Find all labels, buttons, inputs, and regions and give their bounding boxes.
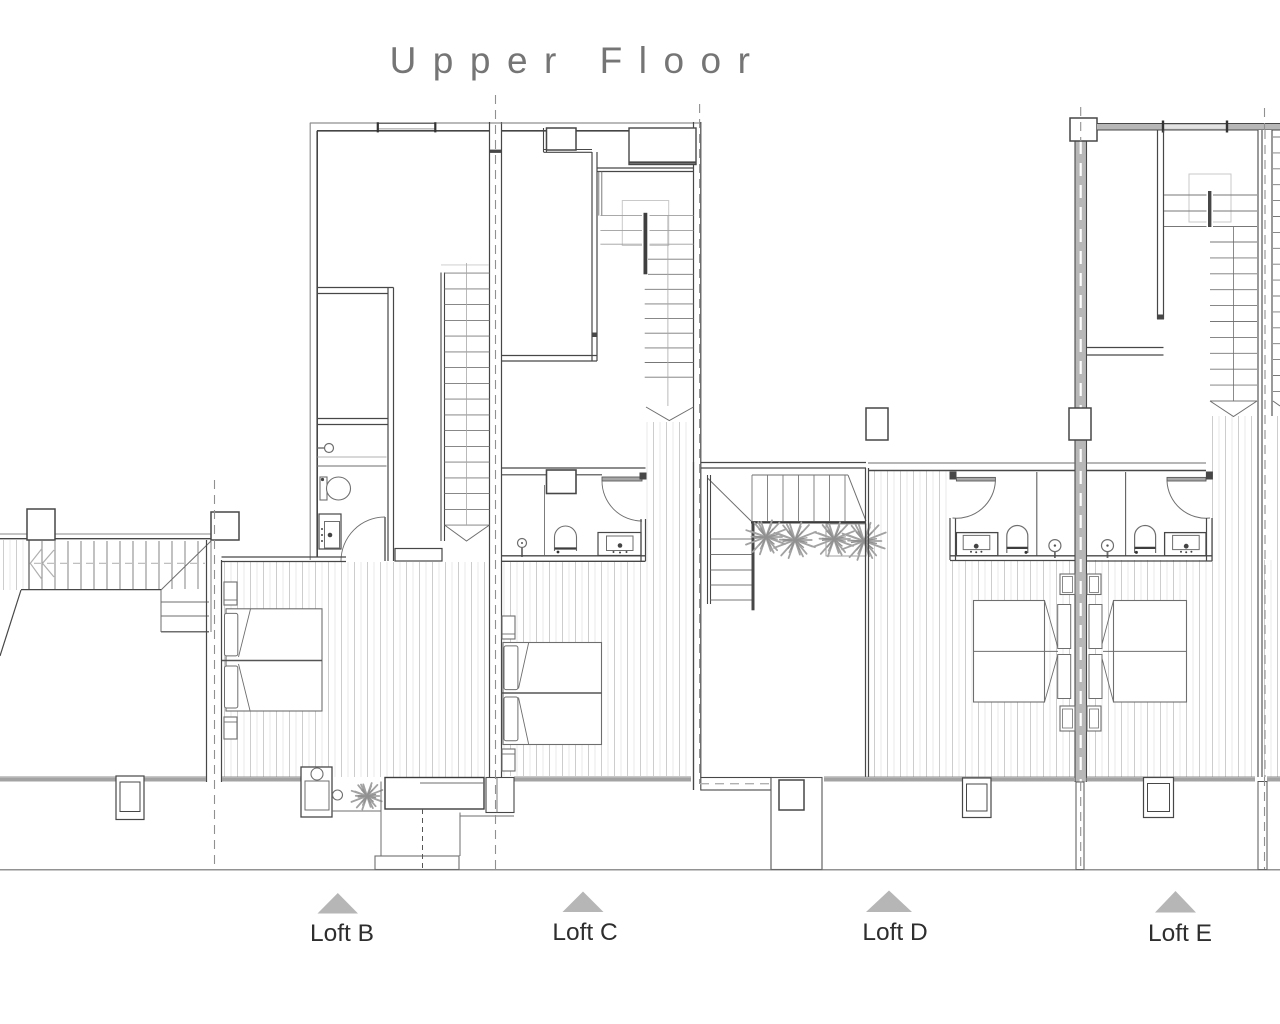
svg-text:Loft D: Loft D — [862, 919, 927, 946]
svg-text:Loft B: Loft B — [310, 920, 374, 947]
svg-text:Upper Floor: Upper Floor — [390, 40, 767, 81]
svg-text:Loft E: Loft E — [1148, 920, 1212, 947]
svg-text:Loft C: Loft C — [552, 919, 617, 946]
